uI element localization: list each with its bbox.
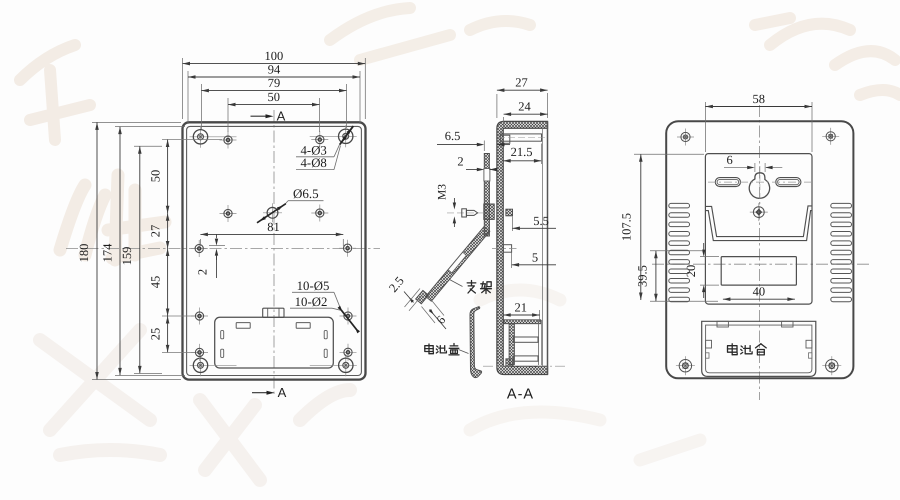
- svg-text:79: 79: [268, 76, 281, 90]
- svg-text:107.5: 107.5: [620, 213, 634, 241]
- svg-text:39.5: 39.5: [636, 265, 650, 287]
- svg-text:94: 94: [268, 63, 281, 77]
- svg-text:A: A: [277, 109, 286, 124]
- svg-text:81: 81: [267, 220, 280, 234]
- svg-text:100: 100: [265, 49, 284, 63]
- svg-text:45: 45: [149, 276, 163, 289]
- svg-text:58: 58: [752, 92, 765, 106]
- svg-text:10-Ø2: 10-Ø2: [295, 295, 328, 309]
- svg-text:2: 2: [457, 155, 463, 169]
- svg-text:6: 6: [726, 153, 732, 167]
- svg-text:40: 40: [753, 285, 766, 299]
- svg-text:10-Ø5: 10-Ø5: [297, 279, 330, 293]
- svg-text:A: A: [278, 385, 287, 400]
- svg-text:4-Ø3: 4-Ø3: [301, 143, 327, 157]
- svg-text:50: 50: [149, 170, 163, 183]
- svg-text:M3: M3: [437, 184, 449, 200]
- svg-text:25: 25: [149, 328, 163, 341]
- svg-text:24: 24: [518, 100, 531, 114]
- svg-text:21: 21: [514, 300, 527, 314]
- svg-text:27: 27: [515, 76, 528, 90]
- svg-text:2: 2: [196, 269, 210, 275]
- svg-text:5: 5: [532, 251, 538, 265]
- svg-text:180: 180: [77, 244, 91, 263]
- svg-text:4-Ø8: 4-Ø8: [301, 156, 327, 170]
- svg-text:20: 20: [684, 265, 698, 278]
- svg-text:A-A: A-A: [507, 387, 534, 403]
- svg-text:6.5: 6.5: [445, 129, 461, 143]
- svg-text:174: 174: [101, 243, 115, 263]
- svg-text:159: 159: [120, 247, 134, 266]
- svg-text:21.5: 21.5: [511, 145, 533, 159]
- svg-text:50: 50: [268, 90, 281, 104]
- svg-text:27: 27: [149, 225, 163, 238]
- svg-text:5.5: 5.5: [533, 214, 549, 228]
- svg-text:Ø6.5: Ø6.5: [293, 186, 319, 201]
